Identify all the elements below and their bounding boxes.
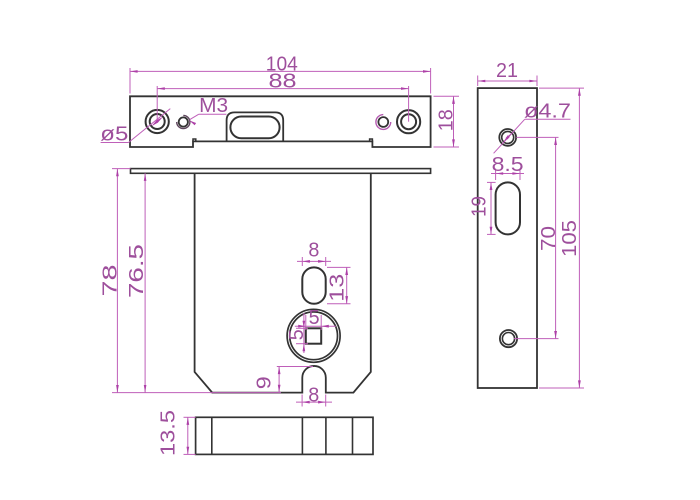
- svg-text:9: 9: [254, 376, 276, 389]
- svg-text:76.5: 76.5: [126, 244, 148, 298]
- svg-text:8: 8: [308, 384, 319, 406]
- svg-text:21: 21: [496, 60, 518, 82]
- svg-text:13: 13: [327, 274, 349, 302]
- svg-text:78: 78: [99, 265, 121, 297]
- svg-text:13.5: 13.5: [158, 410, 180, 456]
- svg-text:5: 5: [309, 307, 320, 329]
- svg-text:70: 70: [538, 226, 560, 251]
- svg-text:ø4.7: ø4.7: [524, 101, 571, 123]
- svg-text:M3: M3: [199, 95, 228, 117]
- svg-text:105: 105: [559, 220, 581, 257]
- svg-text:ø5: ø5: [100, 124, 128, 146]
- svg-text:8.5: 8.5: [492, 154, 524, 176]
- svg-text:5: 5: [286, 329, 308, 340]
- svg-text:18: 18: [436, 109, 458, 131]
- svg-text:8: 8: [308, 240, 319, 262]
- svg-text:88: 88: [269, 71, 297, 93]
- svg-text:19: 19: [469, 196, 491, 217]
